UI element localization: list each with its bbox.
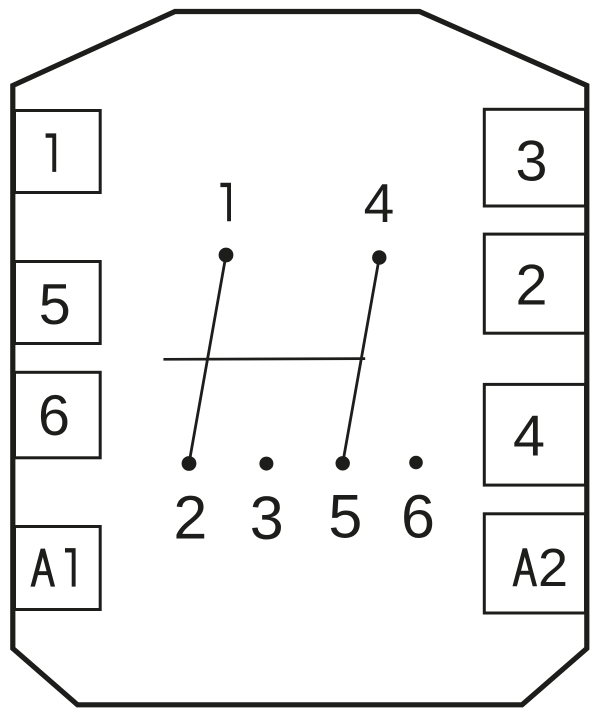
svg-text:2: 2 <box>538 538 568 598</box>
svg-text:5: 5 <box>39 273 71 337</box>
svg-text:4: 4 <box>513 404 545 468</box>
svg-text:6: 6 <box>38 384 70 448</box>
svg-text:3: 3 <box>516 130 548 194</box>
svg-text:2: 2 <box>516 254 548 318</box>
svg-text:4: 4 <box>364 172 395 234</box>
svg-text:2: 2 <box>173 483 207 551</box>
svg-text:6: 6 <box>401 482 435 550</box>
svg-text:5: 5 <box>328 482 362 550</box>
svg-text:3: 3 <box>250 484 284 552</box>
